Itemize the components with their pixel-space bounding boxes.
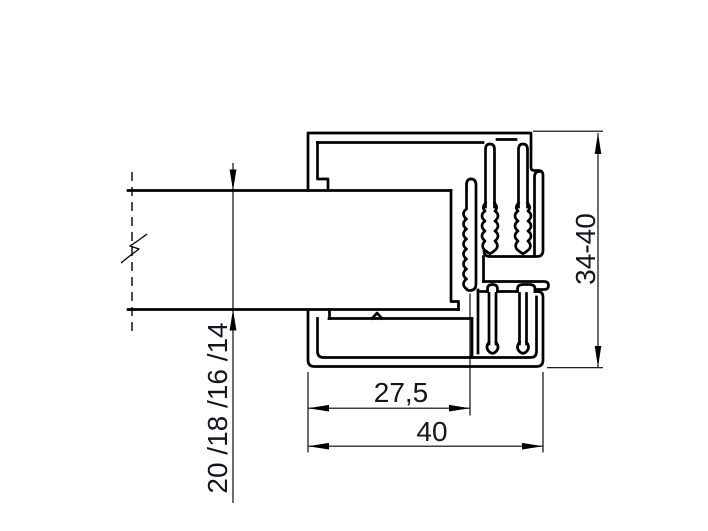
bottom-outer-outline bbox=[308, 292, 543, 367]
arrow-40-left bbox=[308, 443, 329, 450]
profile-bottom-jaw bbox=[308, 257, 549, 367]
arrow-40-right bbox=[522, 443, 543, 450]
bottom-foot-left bbox=[487, 342, 498, 353]
profile-top-jaw bbox=[308, 133, 543, 257]
glass-thickness-label: 20 /18 /16 /14 bbox=[202, 322, 233, 493]
top-channel-left-serration-inner bbox=[490, 203, 498, 254]
top-outer-outline bbox=[308, 133, 543, 257]
arrow-34-40-bottom bbox=[595, 346, 602, 367]
outer-width-label: 40 bbox=[416, 416, 447, 447]
gasket-back-edge bbox=[467, 179, 477, 291]
top-channel-left-wall bbox=[486, 144, 495, 207]
glass-right-edge bbox=[451, 191, 459, 310]
dimension-glass-thickness: 20 /18 /16 /14 bbox=[202, 163, 236, 503]
gasket-fin bbox=[464, 179, 477, 291]
bottom-inner-cavity bbox=[318, 297, 537, 358]
top-channel-right-serration-inner bbox=[515, 203, 523, 254]
break-symbol bbox=[121, 234, 147, 263]
gasket-wavy-edge bbox=[464, 179, 472, 289]
top-channel-left-serration-outer bbox=[482, 203, 490, 254]
bottom-hook-right bbox=[518, 285, 536, 292]
bottom-hook-left bbox=[488, 285, 498, 292]
arrow-34-40-top bbox=[595, 133, 602, 154]
top-right-wall-inner bbox=[535, 172, 540, 255]
inner-width-label: 27,5 bbox=[374, 377, 429, 408]
glass-panel bbox=[121, 172, 459, 334]
height-range-label: 34-40 bbox=[570, 213, 601, 285]
top-left-lip-step bbox=[318, 143, 329, 191]
glass-dim-arrow-top bbox=[230, 170, 237, 191]
technical-drawing-canvas: 20 /18 /16 /14 27,5 40 34-40 bbox=[0, 0, 708, 531]
bottom-foot-right bbox=[518, 342, 529, 353]
profile-section-drawing: 20 /18 /16 /14 27,5 40 34-40 bbox=[0, 0, 708, 531]
top-channel-right-serration-outer bbox=[523, 203, 531, 254]
top-channel-right-wall bbox=[519, 144, 528, 207]
arrow-27-5-right bbox=[449, 405, 470, 412]
arrow-27-5-left bbox=[308, 405, 329, 412]
